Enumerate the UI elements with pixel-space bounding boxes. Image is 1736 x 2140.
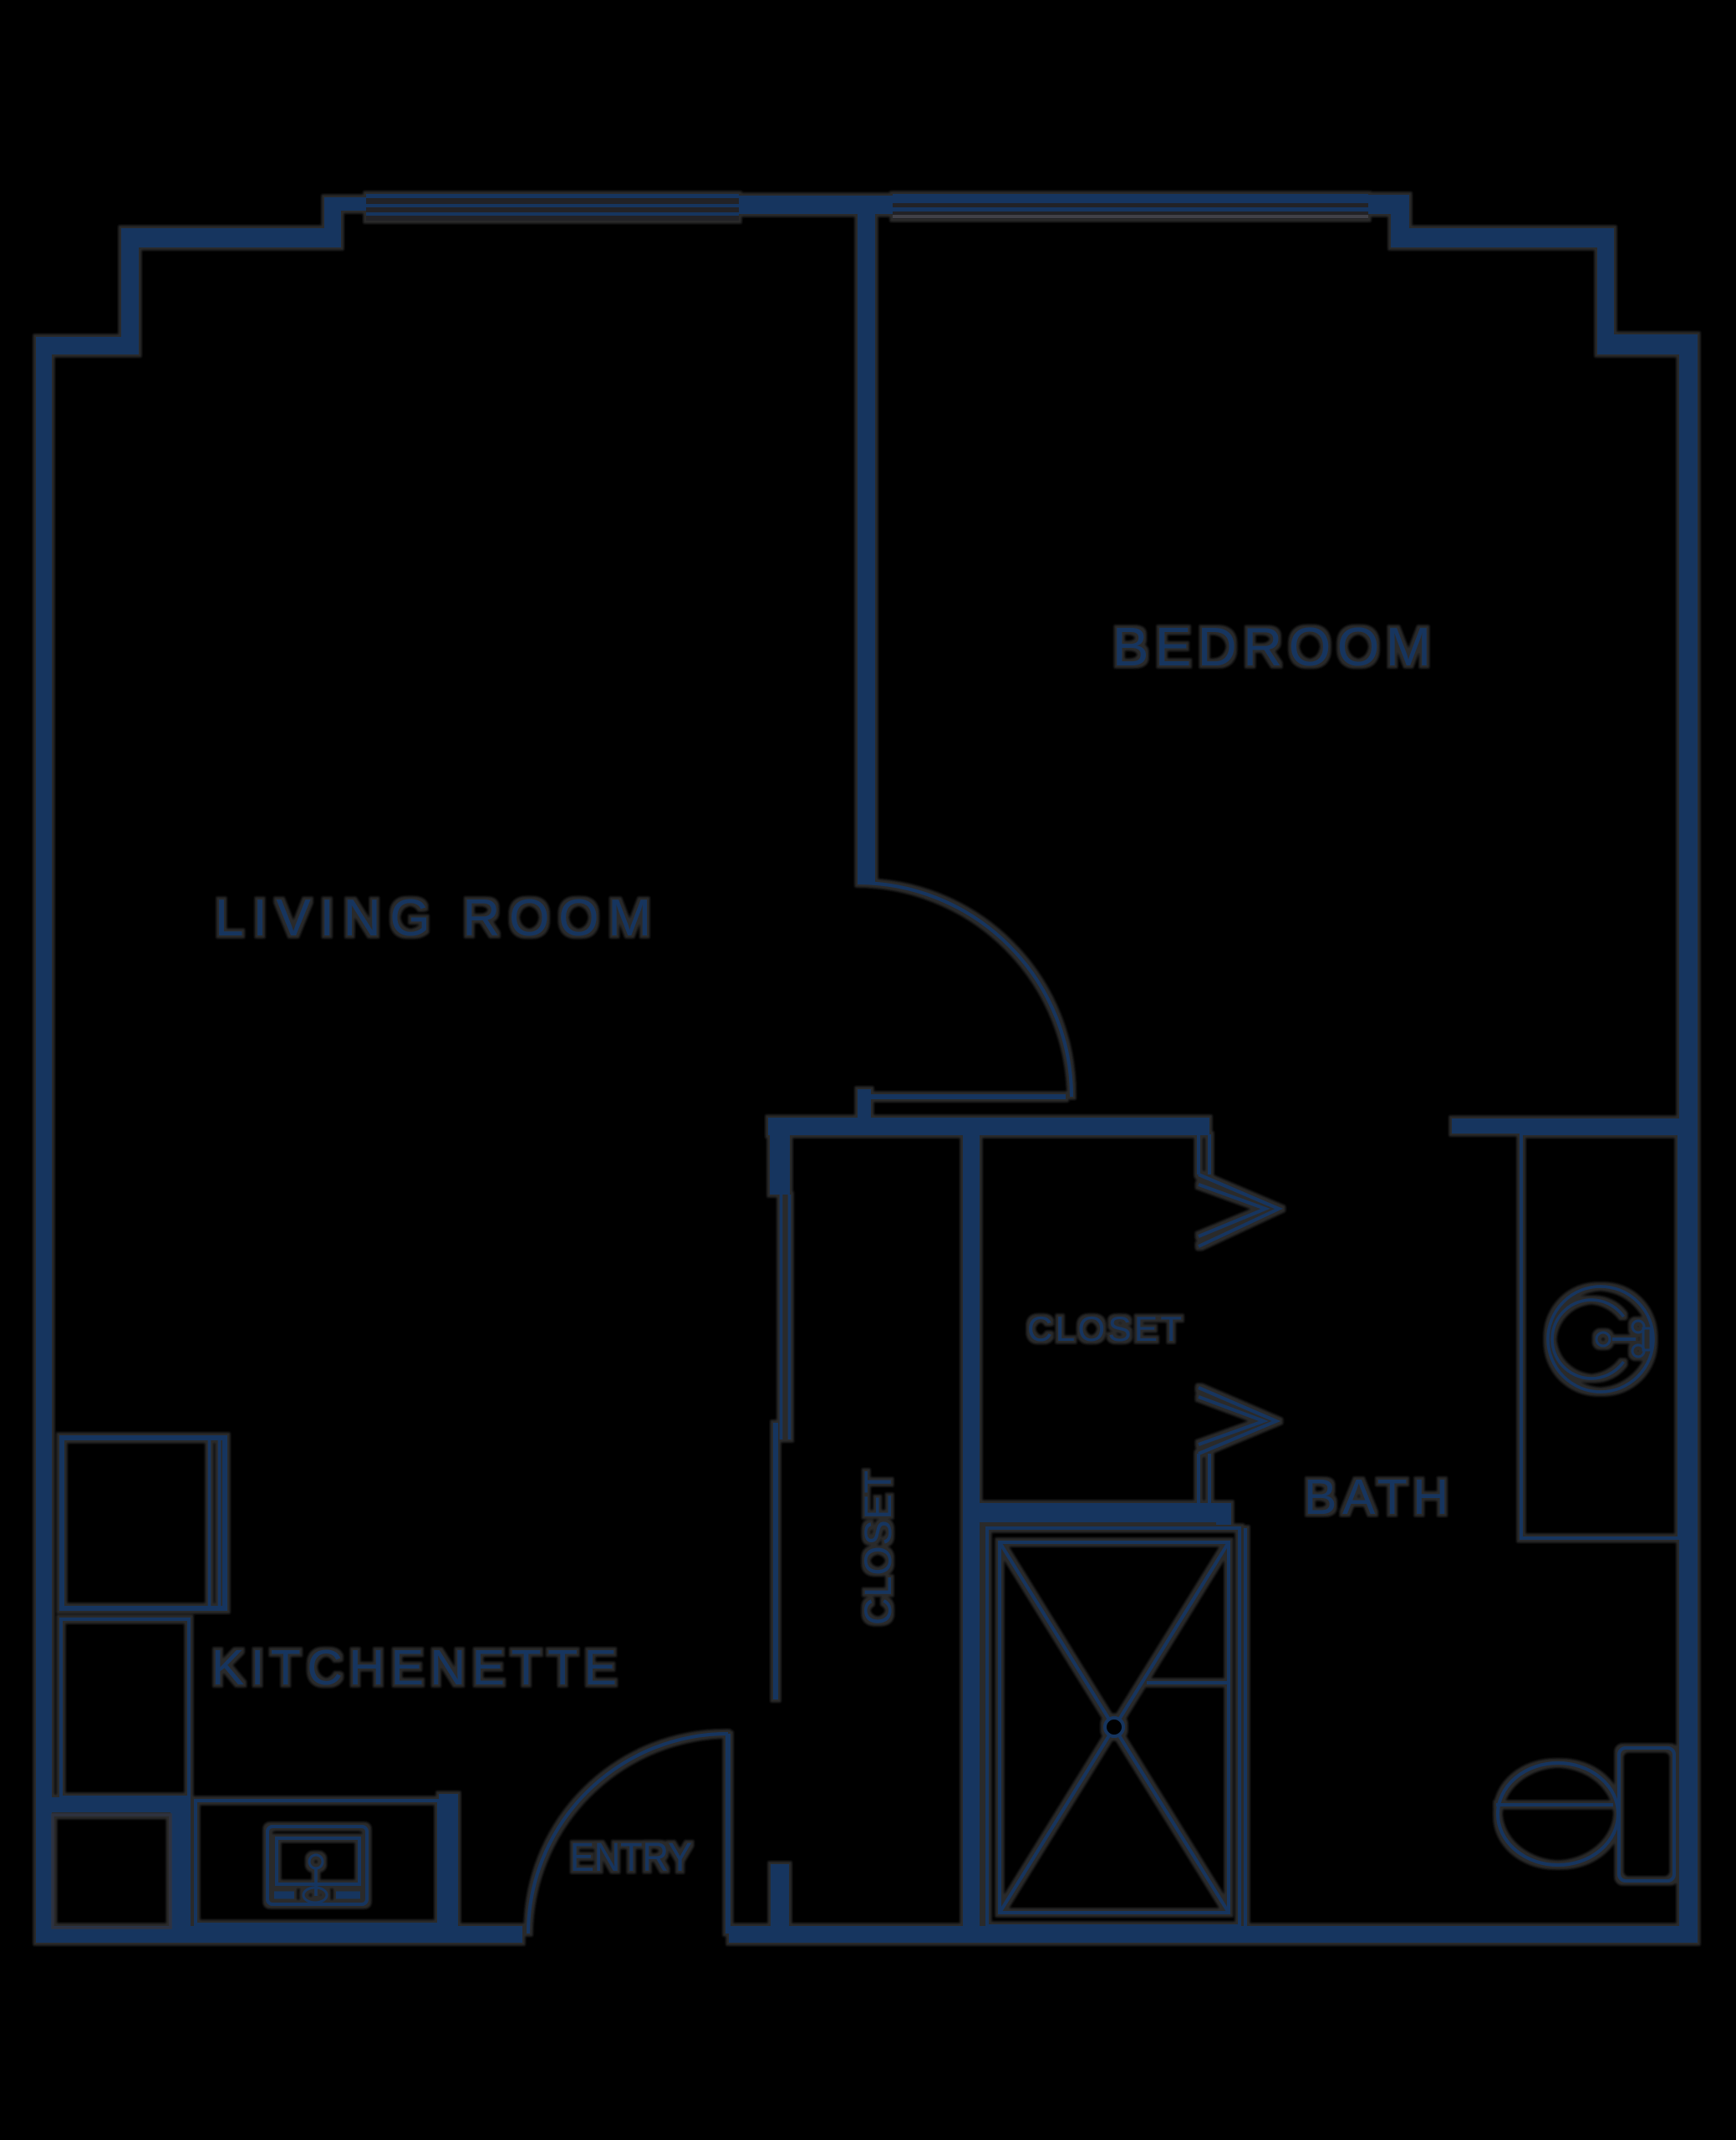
svg-text:KITCHENETTE: KITCHENETTE	[211, 1640, 617, 1695]
svg-text:LIVING ROOM: LIVING ROOM	[215, 889, 651, 947]
svg-text:CLOSET: CLOSET	[857, 1470, 899, 1625]
svg-text:ENTRY: ENTRY	[570, 1836, 692, 1880]
svg-text:BEDROOM: BEDROOM	[1112, 616, 1431, 677]
svg-text:CLOSET: CLOSET	[1027, 1309, 1182, 1348]
svg-text:BATH: BATH	[1304, 1470, 1448, 1525]
